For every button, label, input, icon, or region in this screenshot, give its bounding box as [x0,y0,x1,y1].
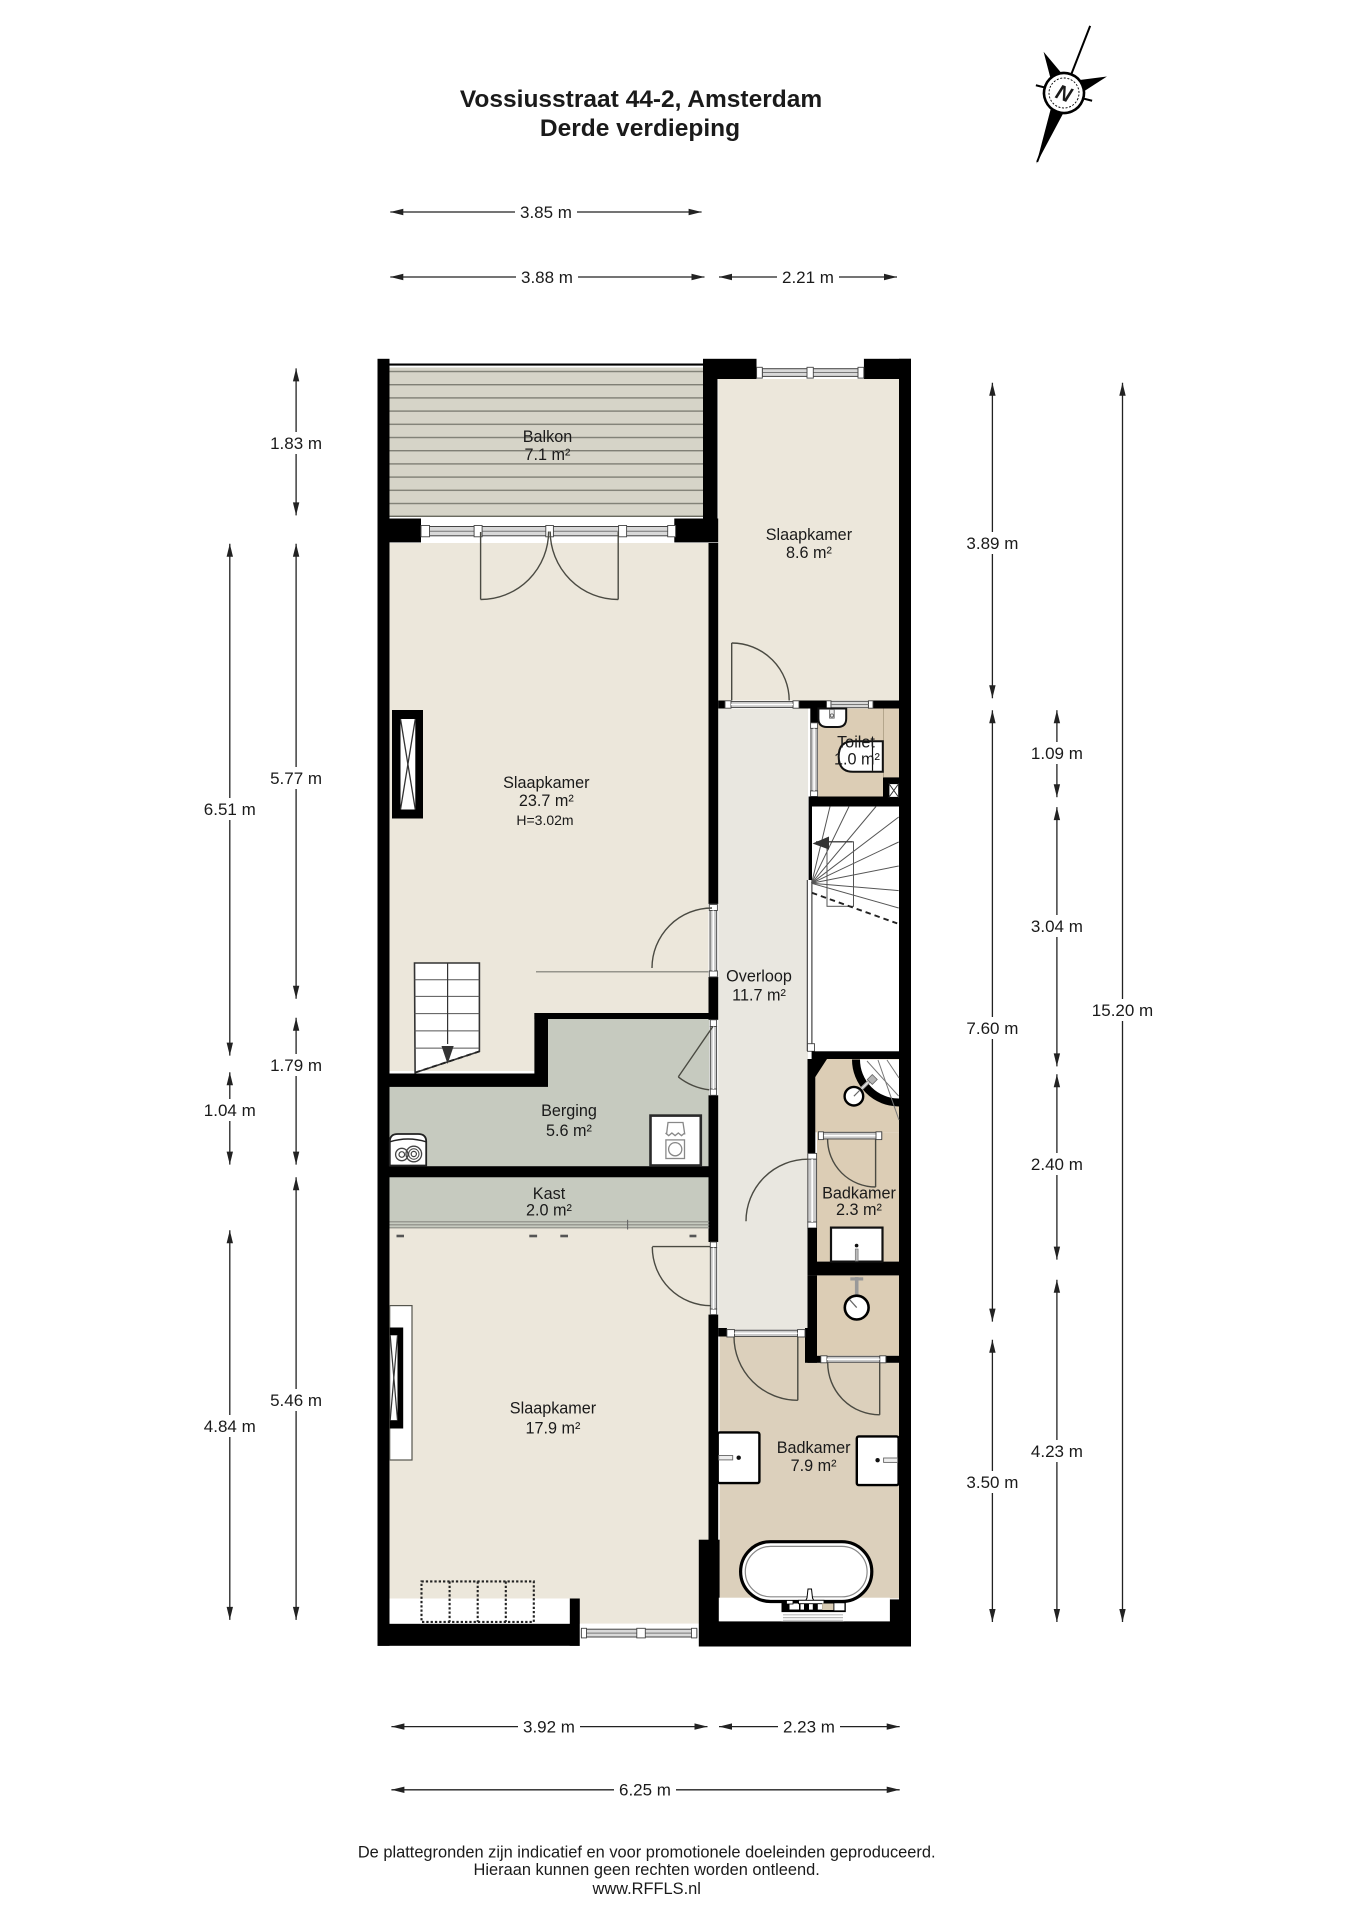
svg-text:1.83 m: 1.83 m [270,434,322,453]
svg-text:Slaapkamer: Slaapkamer [766,526,853,544]
svg-text:Badkamer: Badkamer [777,1439,851,1457]
svg-text:Badkamer: Badkamer [822,1185,896,1203]
svg-text:5.77 m: 5.77 m [270,769,322,788]
svg-text:Overloop: Overloop [726,968,792,986]
svg-text:11.7 m²: 11.7 m² [732,987,786,1005]
svg-text:2.23 m: 2.23 m [783,1717,835,1736]
svg-text:Slaapkamer: Slaapkamer [503,774,590,792]
svg-text:Vossiusstraat 44-2, Amsterdam: Vossiusstraat 44-2, Amsterdam [460,86,822,113]
svg-text:17.9 m²: 17.9 m² [526,1420,581,1438]
svg-text:15.20 m: 15.20 m [1092,1001,1153,1020]
svg-text:1.0 m²: 1.0 m² [834,751,880,769]
svg-text:3.88 m: 3.88 m [521,268,573,287]
svg-text:H=3.02m: H=3.02m [516,812,573,828]
svg-text:Slaapkamer: Slaapkamer [510,1400,597,1418]
svg-text:Berging: Berging [541,1102,597,1120]
svg-text:5.46 m: 5.46 m [270,1391,322,1410]
svg-text:Balkon: Balkon [523,428,573,446]
svg-text:3.89 m: 3.89 m [966,534,1018,553]
svg-text:5.6 m²: 5.6 m² [546,1122,592,1140]
svg-text:Hieraan kunnen geen rechten wo: Hieraan kunnen geen rechten worden ontle… [474,1861,820,1879]
svg-text:www.RFFLS.nl: www.RFFLS.nl [592,1880,701,1898]
svg-text:8.6 m²: 8.6 m² [786,544,832,562]
svg-text:7.9 m²: 7.9 m² [791,1457,837,1475]
svg-text:1.09 m: 1.09 m [1031,744,1083,763]
svg-text:Derde verdieping: Derde verdieping [540,115,740,142]
svg-text:4.23 m: 4.23 m [1031,1442,1083,1461]
svg-text:3.92 m: 3.92 m [523,1717,575,1736]
svg-text:7.60 m: 7.60 m [966,1019,1018,1038]
svg-text:Toilet: Toilet [837,734,875,752]
svg-text:4.84 m: 4.84 m [204,1417,256,1436]
svg-text:1.79 m: 1.79 m [270,1056,322,1075]
svg-text:3.04 m: 3.04 m [1031,917,1083,936]
svg-text:2.0 m²: 2.0 m² [526,1202,572,1220]
svg-text:3.50 m: 3.50 m [966,1473,1018,1492]
svg-text:Kast: Kast [533,1185,566,1203]
svg-text:1.04 m: 1.04 m [204,1101,256,1120]
svg-text:2.3 m²: 2.3 m² [836,1201,882,1219]
svg-text:6.25 m: 6.25 m [619,1781,671,1800]
svg-text:6.51 m: 6.51 m [204,800,256,819]
svg-text:De plattegronden zijn indicati: De plattegronden zijn indicatief en voor… [358,1844,936,1862]
svg-text:23.7 m²: 23.7 m² [519,792,574,810]
svg-text:2.21 m: 2.21 m [782,268,834,287]
svg-text:3.85 m: 3.85 m [520,203,572,222]
svg-text:7.1 m²: 7.1 m² [525,446,571,464]
svg-text:2.40 m: 2.40 m [1031,1155,1083,1174]
